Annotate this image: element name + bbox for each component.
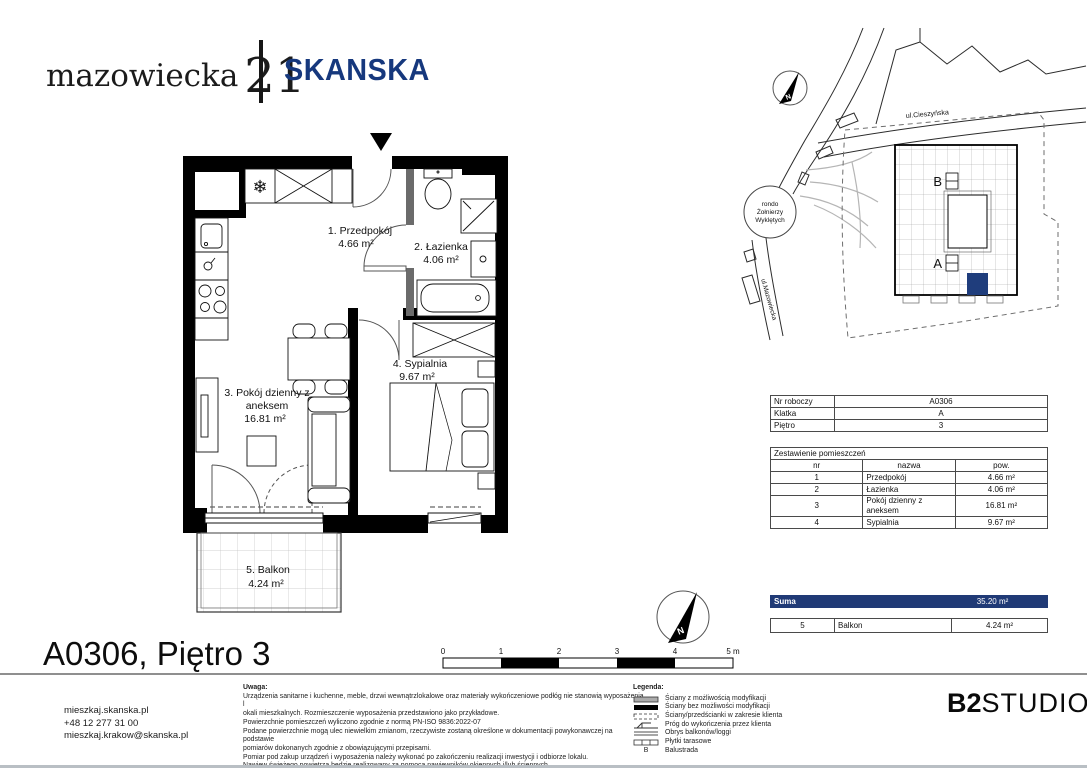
brand-divider: [259, 40, 263, 103]
rooms-table-header: nr nazwa pow.: [771, 460, 1048, 472]
cell-nr: 2: [771, 484, 863, 496]
legend-label: Ściany bez możliwości modyfikacji: [665, 703, 770, 712]
site-north-arrow-icon: N: [773, 71, 807, 105]
notes-title: Uwaga:: [243, 684, 645, 693]
contact-block: mieszkaj.skanska.pl +48 12 277 31 00 mie…: [64, 705, 188, 743]
entry-arrow-icon: [370, 133, 392, 151]
b2studio-light: STUDIO: [982, 688, 1087, 718]
table-row: 4 Sypialnia 9.67 m²: [771, 517, 1048, 529]
suma-value: 35.20 m²: [937, 597, 1048, 606]
b2studio-logo: B2STUDIO: [947, 688, 1087, 719]
legend-item: Ściany/przedścianki w zakresie klienta: [633, 712, 823, 721]
brand-name: mazowiecka: [46, 58, 238, 94]
info-value: A0306: [835, 396, 1048, 408]
skanska-logo: SKANSKA: [284, 52, 430, 88]
suma-total-bar: Suma 35.20 m²: [770, 595, 1048, 608]
shaft: [195, 172, 239, 210]
table-row: 2 Łazienka 4.06 m²: [771, 484, 1048, 496]
site-driveways: [800, 152, 878, 248]
table-row: 5 Balkon 4.24 m²: [771, 619, 1048, 633]
room-label-pokoj-1: 3. Pokój dzienny z: [224, 387, 309, 399]
site-map: B A N ul.Cieszyńska rondo Żołnierzy Wykl…: [738, 22, 1087, 342]
cell-pow: 16.81 m²: [955, 496, 1047, 517]
cell-nr: 4: [771, 517, 863, 529]
rooms-table-title: Zestawienie pomieszczeń: [771, 448, 1048, 460]
col-header-nazwa: nazwa: [863, 460, 955, 472]
fridge-snowflake-icon: ❄: [252, 177, 267, 197]
room-label-sypialnia: 4. Sypialnia: [393, 358, 447, 370]
cell-nazwa: Przedpokój: [863, 472, 955, 484]
notes-line: Podane powierzchnie mogą ulec niewielkim…: [243, 728, 645, 745]
wall-structural-icon: [633, 704, 659, 711]
legend-item: B Balustrada: [633, 747, 823, 756]
balustrade-symbol: B: [633, 747, 659, 756]
legend-label: Próg do wykończenia przez klienta: [665, 721, 771, 730]
cell-pow: 9.67 m²: [955, 517, 1047, 529]
street-label-cieszynska: ul.Cieszyńska: [906, 109, 950, 120]
info-label: Nr roboczy: [771, 396, 835, 408]
room-label-pokoj-2: aneksem: [246, 400, 289, 412]
legend-label: Balustrada: [665, 747, 698, 756]
cell-nr: 5: [771, 619, 835, 633]
cell-pow: 4.06 m²: [955, 484, 1047, 496]
cell-nr: 1: [771, 472, 863, 484]
table-row: Klatka A: [771, 408, 1048, 420]
cell-nazwa: Łazienka: [863, 484, 955, 496]
plan-walls-grey: [406, 169, 414, 316]
balcony-table: 5 Balkon 4.24 m²: [770, 618, 1048, 633]
notes-line: Urządzenia sanitarne i kuchenne, meble, …: [243, 693, 645, 710]
room-label-lazienka: 2. Łazienka: [414, 241, 468, 253]
legend-label: Płytki tarasowe: [665, 738, 711, 747]
room-label-przedpokoj: 1. Przedpokój: [328, 225, 392, 237]
cell-pow: 4.66 m²: [955, 472, 1047, 484]
svg-text:Wyklętych: Wyklętych: [755, 217, 785, 224]
stair-label-a: A: [933, 256, 942, 271]
footer-divider: [0, 673, 1087, 675]
info-value: 3: [835, 420, 1048, 432]
room-area-przedpokoj: 4.66 m²: [338, 238, 374, 250]
info-value: A: [835, 408, 1048, 420]
svg-text:Żołnierzy: Żołnierzy: [757, 207, 784, 216]
svg-text:rondo: rondo: [762, 201, 779, 208]
legend-item: Próg do wykończenia przez klienta: [633, 721, 823, 730]
info-label: Klatka: [771, 408, 835, 420]
cell-nazwa: Sypialnia: [863, 517, 955, 529]
contact-phone[interactable]: +48 12 277 31 00: [64, 718, 188, 731]
balcony-outline-icon: [633, 730, 659, 737]
legend-item: Ściany bez możliwości modyfikacji: [633, 703, 823, 712]
sheet-title: A0306, Piętro 3: [43, 635, 271, 673]
table-row: 1 Przedpokój 4.66 m²: [771, 472, 1048, 484]
b2studio-bold: B2: [947, 688, 982, 718]
legend-block: Legenda: Ściany z możliwością modyfikacj…: [633, 684, 823, 756]
legend-label: Obrys balkonów/loggi: [665, 729, 731, 738]
scale-bar: 0 1 2 3 4 5 m: [441, 647, 740, 668]
legend-label: Ściany/przedścianki w zakresie klienta: [665, 712, 782, 721]
room-area-pokoj: 16.81 m²: [244, 413, 286, 425]
floorplan-sheet: mazowiecka21 SKANSKA: [0, 0, 1087, 768]
suma-label: Suma: [774, 597, 796, 606]
rooms-table: Zestawienie pomieszczeń nr nazwa pow. 1 …: [770, 447, 1048, 529]
scale-bar-group: N 0 1 2 3 4 5 m: [433, 583, 743, 678]
room-area-sypialnia: 9.67 m²: [399, 371, 435, 383]
terrace-tiles-icon: [633, 739, 659, 746]
brand-logo-mazowiecka21: mazowiecka21: [46, 48, 305, 104]
legend-item: Płytki tarasowe: [633, 738, 823, 747]
col-header-pow: pow.: [955, 460, 1047, 472]
cell-nazwa: Balkon: [835, 619, 952, 633]
col-header-nr: nr: [771, 460, 863, 472]
room-label-balkon: 5. Balkon: [246, 564, 290, 576]
north-arrow-icon: N: [657, 591, 709, 643]
scale-tick: 1: [499, 647, 504, 656]
room-area-balkon: 4.24 m²: [248, 578, 284, 590]
scale-tick-end: 5 m: [726, 647, 740, 656]
cell-pow: 4.24 m²: [952, 619, 1048, 633]
notes-line: okali mieszkalnych. Rozmieszczenie wypos…: [243, 710, 645, 719]
scale-tick: 4: [673, 647, 678, 656]
notes-block: Uwaga: Urządzenia sanitarne i kuchenne, …: [243, 684, 645, 768]
bedroom-furniture: [390, 323, 495, 489]
wall-client-icon: [633, 713, 659, 720]
table-row: Piętro 3: [771, 420, 1048, 432]
notes-line: Pomiar pod zakup urządzeń i wyposażenia …: [243, 754, 645, 763]
scale-tick: 0: [441, 647, 446, 656]
threshold-icon: [633, 721, 659, 729]
contact-website-link[interactable]: mieszkaj.skanska.pl: [64, 705, 188, 718]
cell-nr: 3: [771, 496, 863, 517]
floor-plan-drawing: ❄: [180, 130, 525, 642]
notes-line: pomiarów dokonanych zgodnie z obowiązują…: [243, 745, 645, 754]
highlighted-unit: [967, 273, 988, 295]
legend-item: Obrys balkonów/loggi: [633, 729, 823, 738]
table-row: 3 Pokój dzienny z aneksem 16.81 m²: [771, 496, 1048, 517]
room-area-lazienka: 4.06 m²: [423, 254, 459, 266]
wall-modifiable-icon: [633, 696, 659, 703]
legend-title: Legenda:: [633, 684, 823, 693]
scale-tick: 3: [615, 647, 620, 656]
cell-nazwa: Pokój dzienny z aneksem: [863, 496, 955, 517]
contact-email-link[interactable]: mieszkaj.krakow@skanska.pl: [64, 730, 188, 743]
stair-label-b: B: [933, 174, 942, 189]
site-building: [895, 145, 1017, 303]
notes-line: Powierzchnie pomieszczeń wyliczono zgodn…: [243, 719, 645, 728]
unit-info-table: Nr roboczy A0306 Klatka A Piętro 3: [770, 395, 1048, 432]
scale-tick: 2: [557, 647, 562, 656]
table-row: Nr roboczy A0306: [771, 396, 1048, 408]
info-label: Piętro: [771, 420, 835, 432]
